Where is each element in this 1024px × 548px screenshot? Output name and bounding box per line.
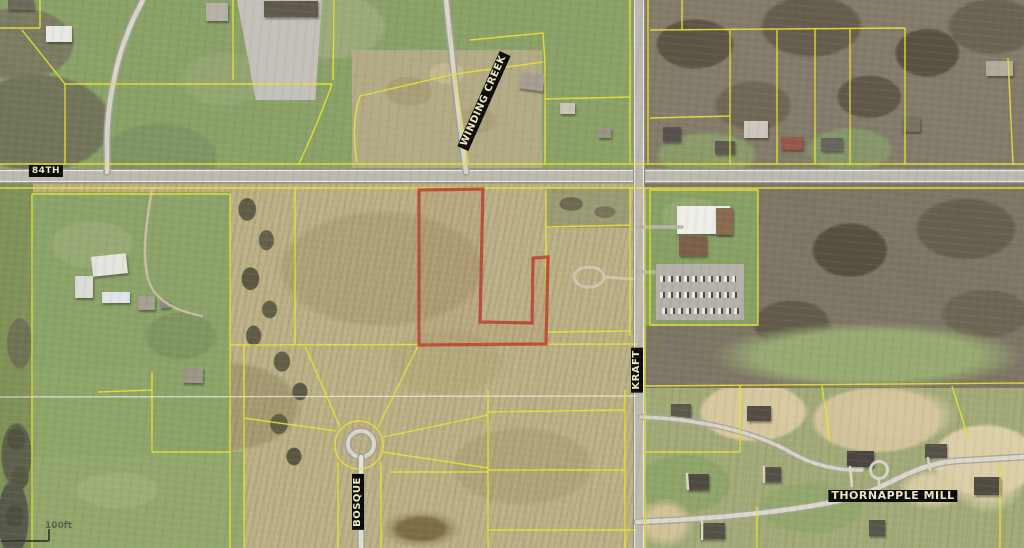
aerial-parcel-map[interactable]: 84TH WINDING CREEK KRAFT BOSQUE THORNAPP… <box>0 0 1024 548</box>
map-linework <box>0 0 1024 548</box>
street-label-thornapple-mill: THORNAPPLE MILL <box>828 490 957 502</box>
section-line <box>0 396 637 397</box>
roads <box>0 0 1024 548</box>
selected-parcel-outline[interactable] <box>419 189 548 345</box>
street-label-kraft: KRAFT <box>631 347 643 392</box>
street-label-84th: 84TH <box>29 165 63 177</box>
scale-label: 100ft <box>42 520 75 532</box>
street-label-bosque: BOSQUE <box>352 474 364 530</box>
